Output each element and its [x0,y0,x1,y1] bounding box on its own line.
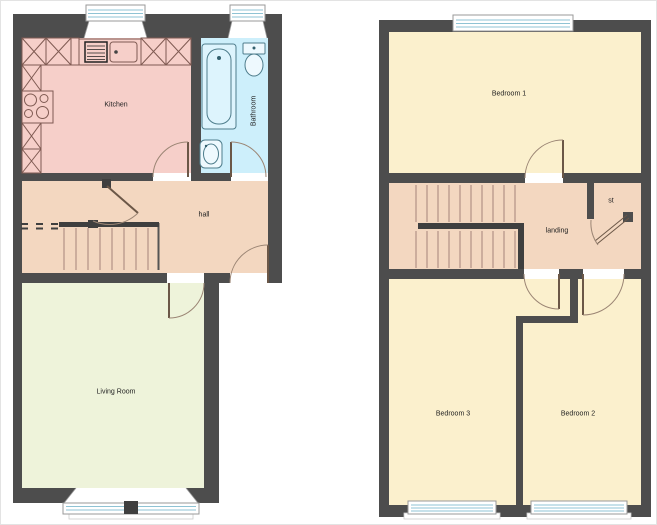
kitchen-hob [25,94,49,119]
bedroom1-window [453,15,573,31]
kitchen-bay-window [84,5,147,38]
bedroom3-label: Bedroom 3 [436,411,470,418]
floor-plan: Kitchen Bathroom hall Living Room Bedroo… [0,0,657,525]
kitchen-label: Kitchen [104,102,127,109]
plan-linework [1,1,657,525]
living-room-label: Living Room [97,389,136,396]
bathroom-label: Bathroom [251,96,258,126]
bedroom2-window [527,501,631,519]
store-door [591,215,629,245]
bedroom1-label: Bedroom 1 [492,91,526,98]
wash-basin [200,140,222,168]
toilet [243,43,265,76]
first-floor-stairs [416,185,524,269]
living-room-bay-window [63,488,199,519]
store-label: st [608,198,613,205]
bedroom1-door [525,140,563,178]
landing-label: landing [546,228,569,235]
bathroom-door [231,142,266,177]
ground-floor-stairs [21,222,159,270]
kitchen-door [153,142,188,177]
bedroom2-label: Bedroom 2 [561,411,595,418]
hall-divider-door [88,179,138,228]
bathroom-bay-window [228,5,267,38]
front-door [230,245,268,283]
kitchen-sink [79,39,141,65]
bedroom3-door [524,274,559,309]
hall-label: hall [199,212,210,219]
bathtub [202,44,236,129]
bedroom3-window [404,501,500,519]
bedroom2-door [583,274,624,315]
living-room-door [169,283,204,318]
